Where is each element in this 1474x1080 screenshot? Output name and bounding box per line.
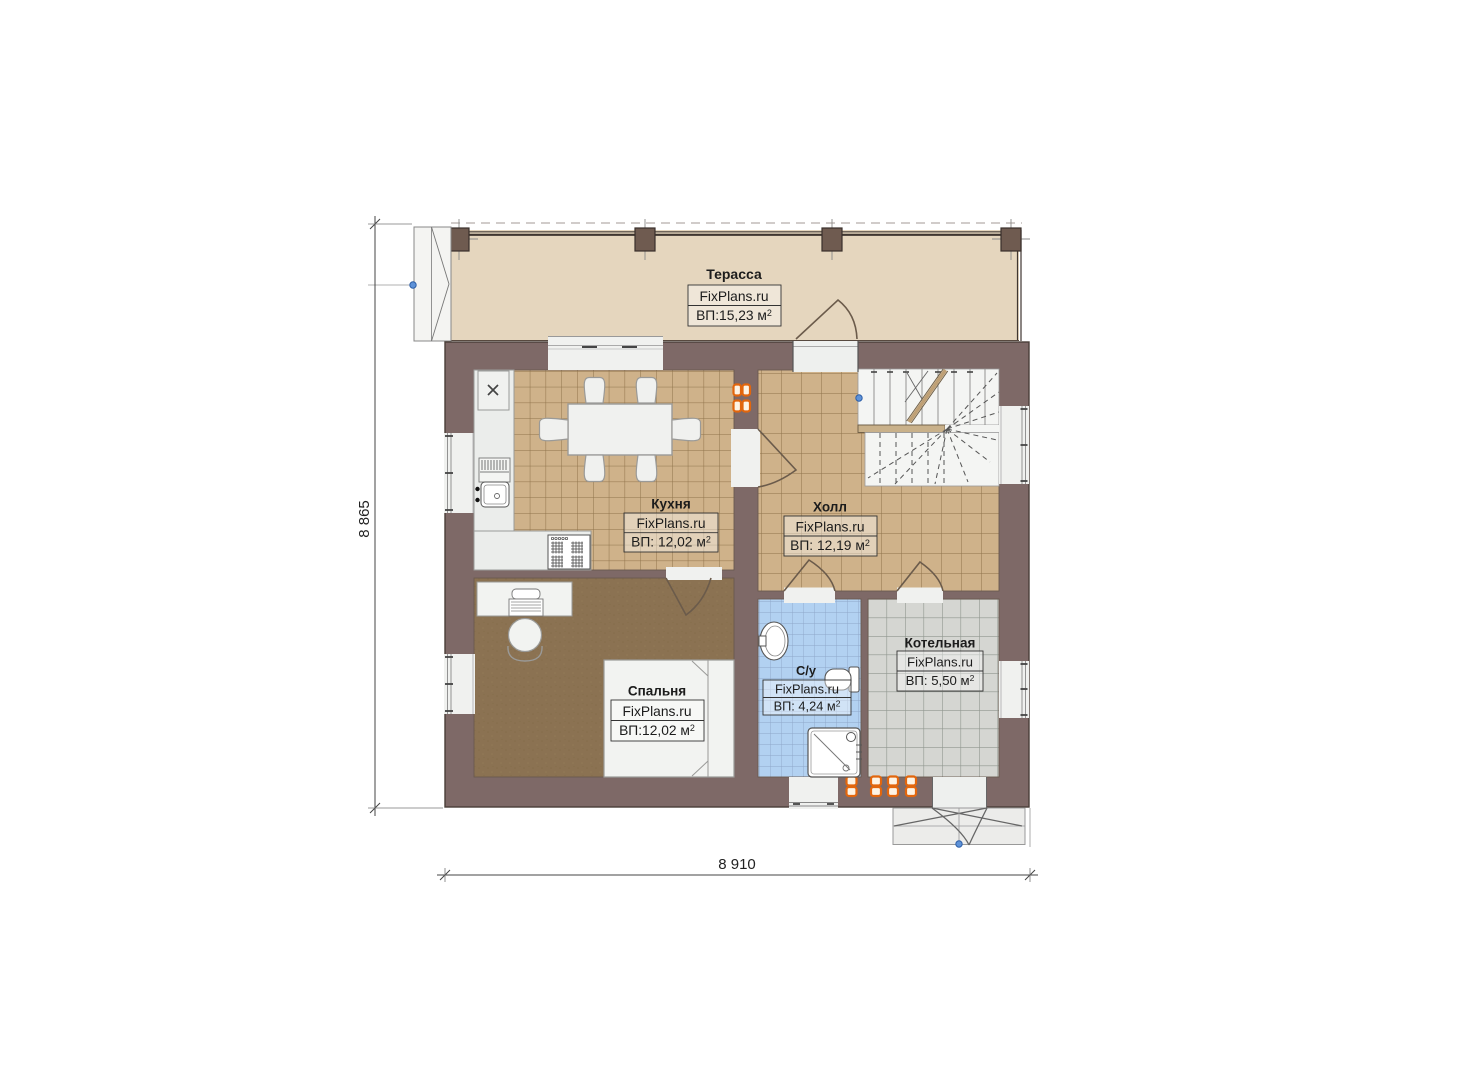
svg-text:8 910: 8 910 xyxy=(718,856,756,873)
svg-text:Кухня: Кухня xyxy=(651,497,690,512)
svg-text:ВП: 5,50 м2: ВП: 5,50 м2 xyxy=(906,673,975,688)
svg-text:Котельная: Котельная xyxy=(905,636,976,651)
svg-text:ВП:15,23 м2: ВП:15,23 м2 xyxy=(696,308,772,323)
svg-text:Терасса: Терасса xyxy=(706,266,762,282)
svg-text:FixPlans.ru: FixPlans.ru xyxy=(622,704,691,719)
svg-text:FixPlans.ru: FixPlans.ru xyxy=(636,516,705,531)
svg-text:Спальня: Спальня xyxy=(628,684,686,699)
svg-text:ВП: 4,24 м2: ВП: 4,24 м2 xyxy=(774,699,841,714)
svg-text:FixPlans.ru: FixPlans.ru xyxy=(775,681,839,696)
svg-text:ВП: 12,19 м2: ВП: 12,19 м2 xyxy=(790,538,870,553)
svg-text:8 865: 8 865 xyxy=(356,500,373,538)
svg-text:ВП:12,02 м2: ВП:12,02 м2 xyxy=(619,723,695,738)
svg-text:Холл: Холл xyxy=(813,500,847,515)
svg-text:С/у: С/у xyxy=(796,663,817,678)
svg-text:FixPlans.ru: FixPlans.ru xyxy=(699,289,768,304)
svg-text:ВП: 12,02 м2: ВП: 12,02 м2 xyxy=(631,535,711,550)
svg-text:FixPlans.ru: FixPlans.ru xyxy=(907,654,973,669)
svg-text:FixPlans.ru: FixPlans.ru xyxy=(795,519,864,534)
